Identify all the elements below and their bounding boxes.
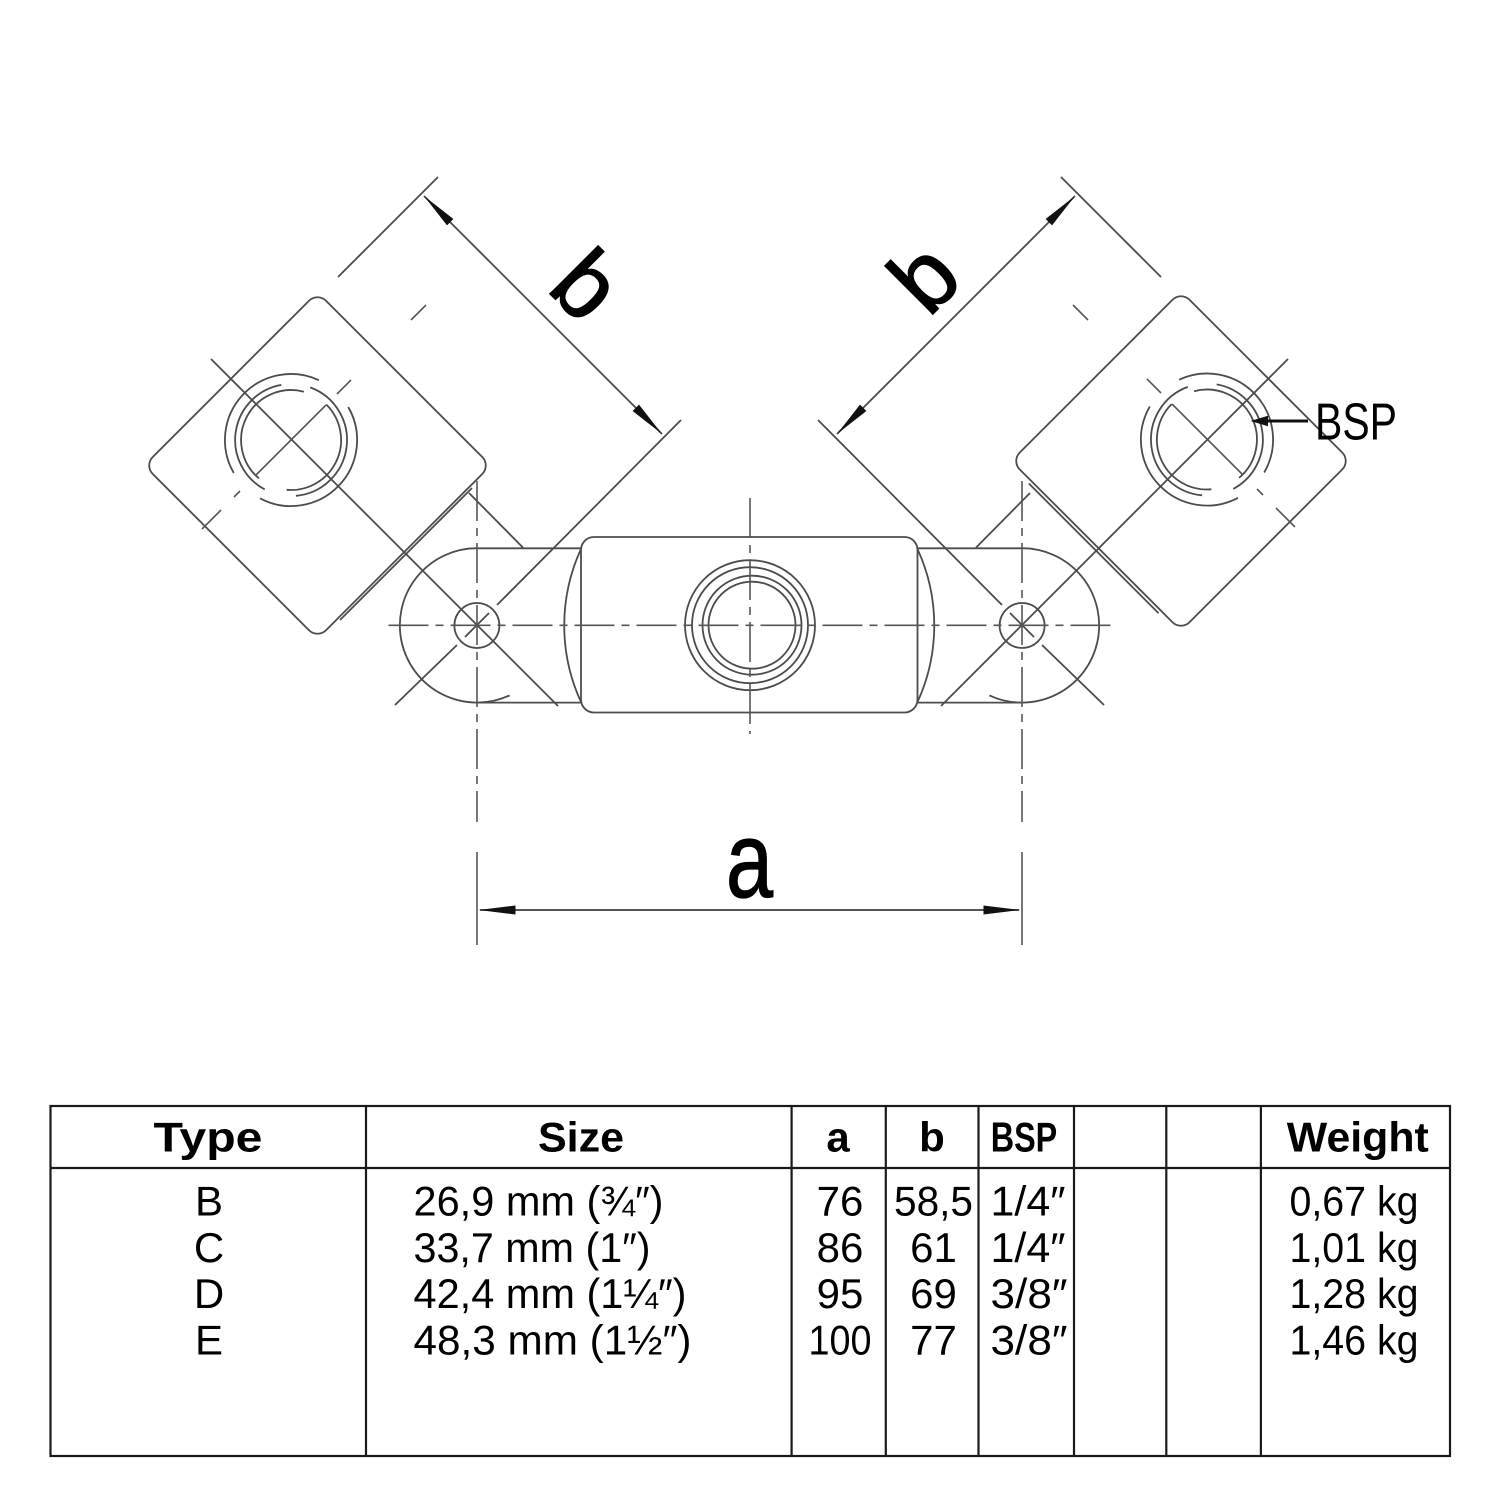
svg-text:a: a xyxy=(726,799,774,920)
svg-text:86: 86 xyxy=(817,1224,864,1271)
svg-text:BSP: BSP xyxy=(1315,394,1397,452)
svg-text:Size: Size xyxy=(538,1114,624,1161)
svg-text:1,01 kg: 1,01 kg xyxy=(1290,1224,1419,1271)
svg-text:69: 69 xyxy=(910,1270,957,1317)
svg-text:33,7 mm (1″): 33,7 mm (1″) xyxy=(414,1224,651,1271)
svg-text:3/8″: 3/8″ xyxy=(991,1316,1068,1363)
svg-text:b: b xyxy=(919,1114,945,1161)
svg-text:100: 100 xyxy=(809,1316,872,1363)
svg-text:1/4″: 1/4″ xyxy=(991,1178,1066,1225)
svg-text:BSP: BSP xyxy=(991,1114,1058,1161)
svg-text:D: D xyxy=(194,1270,224,1317)
svg-text:26,9 mm (¾″): 26,9 mm (¾″) xyxy=(414,1178,664,1225)
svg-text:48,3 mm (1½″): 48,3 mm (1½″) xyxy=(414,1316,692,1363)
svg-text:58,5: 58,5 xyxy=(894,1178,973,1225)
svg-text:1,28 kg: 1,28 kg xyxy=(1290,1270,1419,1317)
svg-text:E: E xyxy=(195,1316,223,1363)
svg-text:0,67 kg: 0,67 kg xyxy=(1290,1178,1419,1225)
svg-text:Type: Type xyxy=(154,1114,263,1161)
svg-text:Weight: Weight xyxy=(1287,1114,1429,1161)
svg-text:C: C xyxy=(194,1224,224,1271)
svg-text:76: 76 xyxy=(817,1178,864,1225)
svg-text:1,46 kg: 1,46 kg xyxy=(1290,1316,1419,1363)
svg-text:3/8″: 3/8″ xyxy=(991,1270,1068,1317)
svg-text:42,4 mm (1¼″): 42,4 mm (1¼″) xyxy=(414,1270,687,1317)
svg-text:61: 61 xyxy=(910,1224,957,1271)
svg-text:B: B xyxy=(195,1178,223,1225)
svg-text:1/4″: 1/4″ xyxy=(991,1224,1066,1271)
svg-text:95: 95 xyxy=(817,1270,864,1317)
svg-text:a: a xyxy=(826,1114,850,1161)
svg-text:77: 77 xyxy=(910,1316,957,1363)
